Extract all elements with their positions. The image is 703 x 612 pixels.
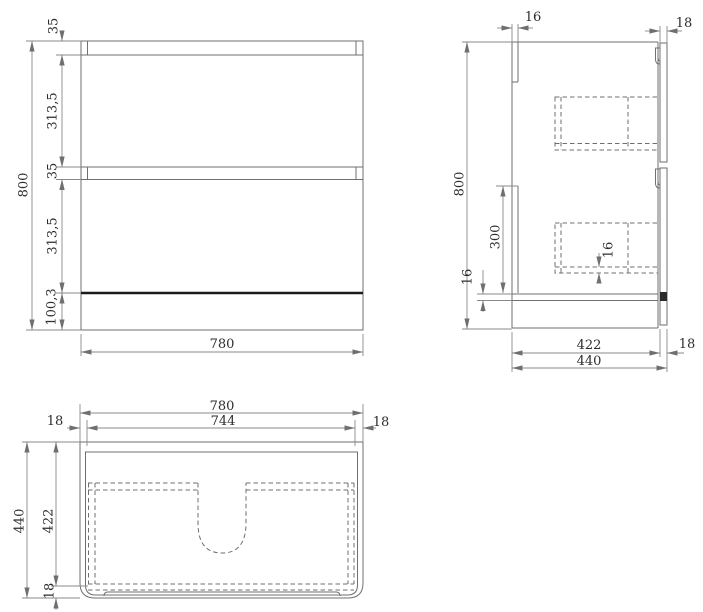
plan-dim-total-depth-label: 440 <box>13 509 28 534</box>
front-dim-drawer-bottom-label: 313,5 <box>46 217 61 254</box>
side-dim-bottom-panel-label: 16 <box>461 269 476 286</box>
plan-dim-wall-left-label: 18 <box>47 414 64 429</box>
front-dim-drawer-top-label: 313,5 <box>46 92 61 129</box>
front-dim-total-height-label: 800 <box>17 173 32 198</box>
front-dim-base-label: 100,3 <box>45 288 60 325</box>
front-dim-total-width-label: 780 <box>210 337 235 352</box>
side-dim-drawer-bottom-panel-label: 16 <box>602 242 617 259</box>
plan-dim-wall-right-label: 18 <box>373 415 390 430</box>
side-dim-inner-depth-label: 422 <box>577 338 602 353</box>
drawing-sheet: 35 313,5 35 313,5 100,3 800 780 16 18 80… <box>0 0 703 612</box>
sheet-background <box>0 0 703 612</box>
side-dim-front-thickness-label: 18 <box>679 337 696 352</box>
side-dim-front-panel-label: 18 <box>676 16 693 31</box>
side-dim-back-panel-label: 16 <box>525 10 542 25</box>
front-dim-mid-gap-label: 35 <box>46 163 61 180</box>
plan-dim-front-thickness-label: 18 <box>43 583 58 600</box>
plan-dim-inner-depth-label: 422 <box>42 509 57 534</box>
side-dim-total-depth-label: 440 <box>577 354 602 369</box>
bottom-panel-section-cut <box>660 292 667 301</box>
front-dim-top-gap-label: 35 <box>47 18 62 35</box>
side-dim-back-rail-label: 300 <box>489 225 504 250</box>
plan-dim-total-width-label: 780 <box>210 399 235 414</box>
side-dim-total-height-label: 800 <box>453 172 468 197</box>
technical-drawing: 35 313,5 35 313,5 100,3 800 780 16 18 80… <box>0 0 703 612</box>
plan-dim-inner-width-label: 744 <box>211 414 236 429</box>
